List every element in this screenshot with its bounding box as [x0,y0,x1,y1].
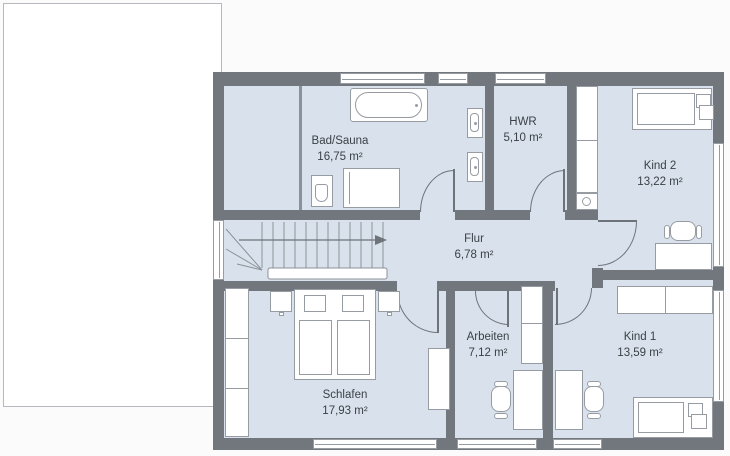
sideboard-kind1 [617,286,713,314]
room-label-kind1: Kind 1 13,59 m² [599,329,681,361]
bathtub-basin [355,92,422,118]
window [495,73,546,84]
chair-arm [664,225,670,239]
window [713,290,724,402]
chair-kind2 [670,221,696,241]
desk-kind2 [655,243,712,270]
wardrobe-left [225,288,249,437]
nightstand [270,291,292,312]
room-name: Arbeiten [447,329,529,345]
pillow [691,414,707,429]
room-label-arbeiten: Arbeiten 7,12 m² [447,329,529,361]
double-bed [294,289,376,380]
desk-kind1 [555,370,583,430]
room-name: Schlafen [304,387,386,403]
shower-cabinet [343,168,400,208]
window [213,220,224,280]
room-area: 5,10 m² [488,130,558,146]
room-label-schlafen: Schlafen 17,93 m² [304,387,386,419]
bathtub [350,88,428,122]
door-leaf-schlafen [437,291,439,333]
room-label-kind2: Kind 2 13,22 m² [620,158,700,190]
mattress [337,320,370,375]
room-name: Kind 1 [599,329,681,345]
room-area: 6,78 m² [434,247,514,263]
pillow [342,295,364,312]
chair-arbeiten [491,386,511,412]
stair-treads [226,222,383,270]
door-leaf-kind2 [598,220,637,222]
wall-kind2-kind1 [592,270,713,280]
sink-drain [474,166,477,169]
wardrobe-divider [226,388,248,389]
bed-kind1 [633,397,713,438]
mattress [637,93,695,125]
toilet-bowl [315,184,328,202]
door-leaf-arbeiten [507,291,509,327]
mattress [299,320,332,375]
room-area: 17,93 m² [304,403,386,419]
chair-arm [494,413,508,419]
sink [467,152,483,182]
wall-hwr-shaft [567,86,576,210]
cabinet-divider [522,323,542,324]
floor-plan: Bad/Sauna 16,75 m² HWR 5,10 m² Kind 2 13… [0,0,730,456]
sideboard-divider [665,287,666,313]
room-area: 7,12 m² [447,345,529,361]
chair-arm [696,225,702,239]
window [713,143,724,267]
door-leaf-bad [453,169,455,212]
door-leaf-hwr [563,169,565,212]
bathtub-drain [415,104,418,107]
room-label-flur: Flur 6,78 m² [434,231,514,263]
window [457,439,537,449]
desk-arbeiten [513,370,543,430]
toilet [311,175,333,207]
wall-segment [224,210,420,220]
pillow [304,295,326,312]
room-name: Kind 2 [620,158,700,174]
staircase [225,221,390,281]
shaft-divider [577,140,597,141]
room-label-hwr: HWR 5,10 m² [488,114,558,146]
room-name: Flur [434,231,514,247]
door-leaf-kind1 [556,288,558,325]
nightstand-knob [387,312,392,316]
mattress [638,402,684,433]
room-name: HWR [488,114,558,130]
stair-direction-arrow [239,235,387,245]
shower-door-line [349,172,350,204]
bed-kind2 [632,88,712,130]
shaft [576,86,598,193]
chair-kind1 [584,386,604,412]
stair-railing [268,268,387,279]
nightstand [378,291,400,312]
wardrobe-divider [226,338,248,339]
wall-segment [565,210,598,220]
chair-arm [494,381,508,387]
nightstand-knob [279,312,284,316]
carport-outline [3,3,222,407]
chair-arm [587,413,601,419]
sink [467,108,483,138]
wall-segment [455,210,530,220]
window [438,73,468,84]
sink-drain [474,122,477,125]
vent-box [576,193,598,210]
room-area: 13,22 m² [620,174,700,190]
vent-circle [582,197,591,206]
wall-arbeiten-kind1 [543,291,553,438]
chair-arm [587,381,601,387]
window [553,439,602,449]
window [313,439,437,449]
wall-bad-hwr [485,86,494,220]
pillow [699,105,714,120]
room-name: Bad/Sauna [295,133,385,149]
room-area: 13,59 m² [599,345,681,361]
room-label-bad-sauna: Bad/Sauna 16,75 m² [295,133,385,165]
window [340,73,425,84]
room-area: 16,75 m² [295,149,385,165]
